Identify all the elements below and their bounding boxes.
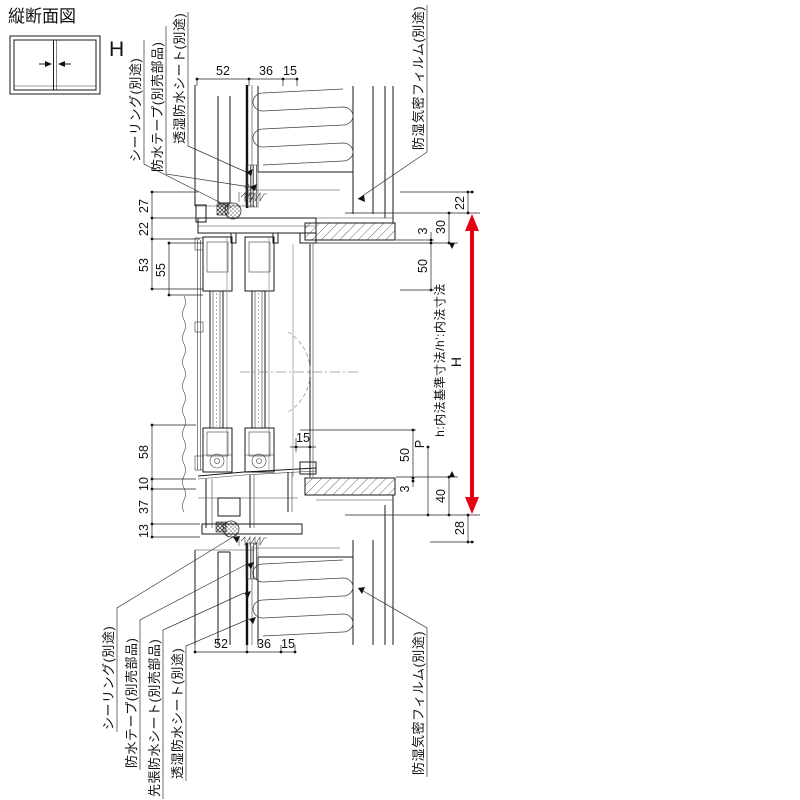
callout-breathable-sheet-top: 透湿防水シート(別途) bbox=[172, 13, 187, 144]
dim-right-3-top: 3 bbox=[416, 227, 430, 234]
wall-above bbox=[195, 85, 393, 223]
trim-board-top bbox=[305, 223, 395, 240]
dim-right-22: 22 bbox=[453, 196, 467, 210]
pre-applied-sheet-wavy bbox=[183, 296, 186, 512]
dim-left-13: 13 bbox=[137, 524, 151, 538]
sealant-bottom bbox=[223, 521, 239, 537]
height-label: H bbox=[448, 357, 464, 367]
interior-sash bbox=[245, 237, 274, 472]
callout-sealing-top: シーリング(別途) bbox=[128, 58, 143, 162]
callout-waterproof-tape-top: 防水テープ(別売部品) bbox=[150, 42, 165, 172]
sliding-window-icon bbox=[10, 36, 100, 94]
dim-bottom-36: 36 bbox=[257, 637, 271, 651]
waterproof-tape-bottom bbox=[246, 543, 258, 579]
callout-vapor-film-bottom: 防湿気密フィルム(別途) bbox=[411, 631, 426, 775]
dim-right-28: 28 bbox=[453, 521, 467, 535]
dim-top-36: 36 bbox=[259, 64, 273, 78]
height-note: h:内法基準寸法/h':内法寸法 bbox=[432, 283, 447, 437]
dims-top: 52 36 15 bbox=[196, 64, 299, 86]
callout-waterproof-tape-bottom: 防水テープ(別売部品) bbox=[124, 638, 139, 768]
sealant-top bbox=[225, 203, 241, 219]
header: 縦断面図 H bbox=[8, 7, 124, 94]
dim-right-P: P bbox=[413, 440, 427, 448]
trim-board-bottom bbox=[305, 478, 395, 495]
arrow-left-icon bbox=[58, 61, 65, 67]
dim-left-55: 55 bbox=[154, 263, 168, 277]
dim-left-27: 27 bbox=[137, 199, 151, 213]
insulation-batt-bottom bbox=[253, 560, 353, 636]
dims-bottom: 52 36 15 bbox=[194, 637, 297, 653]
dim-right-30: 30 bbox=[434, 220, 448, 234]
frame-sill bbox=[198, 462, 393, 537]
insulation-batt-top bbox=[253, 89, 353, 165]
vertical-section-drawing: 縦断面図 H bbox=[0, 0, 800, 800]
callout-pre-applied-sheet: 先張防水シート(別売部品) bbox=[147, 639, 162, 797]
dim-right-40: 40 bbox=[434, 489, 448, 503]
height-arrow-head-bottom bbox=[465, 497, 479, 514]
dim-left-10: 10 bbox=[137, 477, 151, 491]
exterior-sash bbox=[203, 237, 232, 472]
height-arrow-head-top bbox=[465, 214, 479, 231]
dims-right-upper: 22 30 3 50 bbox=[316, 191, 480, 292]
icon-height-label: H bbox=[109, 38, 124, 61]
dim-bottom-15: 15 bbox=[281, 637, 295, 651]
dim-top-52: 52 bbox=[216, 64, 230, 78]
interior-trim-boards bbox=[305, 223, 395, 495]
dim-right-50-top: 50 bbox=[416, 259, 430, 273]
dim-left-53: 53 bbox=[137, 258, 151, 272]
dim-right-3-bottom: 3 bbox=[398, 485, 412, 492]
dims-left-lower: 58 10 37 13 bbox=[137, 424, 200, 539]
dim-top-15: 15 bbox=[283, 64, 297, 78]
callouts: シーリング(別途) 防水テープ(別売部品) 透湿防水シート(別途) 防湿気密フィ… bbox=[101, 5, 427, 799]
wall-below bbox=[195, 495, 393, 645]
dim-left-22: 22 bbox=[137, 222, 151, 236]
dims-left-upper: 27 22 53 55 bbox=[137, 191, 203, 297]
dim-left-58: 58 bbox=[137, 445, 151, 459]
callout-vapor-film-top: 防湿気密フィルム(別途) bbox=[411, 6, 426, 150]
callout-sealing-bottom: シーリング(別途) bbox=[101, 626, 116, 730]
dim-right-50-bottom: 50 bbox=[398, 448, 412, 462]
callout-breathable-sheet-bottom: 透湿防水シート(別途) bbox=[170, 648, 185, 779]
dim-left-37: 37 bbox=[137, 500, 151, 514]
page-title: 縦断面図 bbox=[8, 7, 76, 26]
dim-mid-15: 15 bbox=[296, 431, 310, 445]
dim-bottom-52: 52 bbox=[214, 637, 228, 651]
arrow-right-icon bbox=[45, 61, 52, 67]
height-marker: H h:内法基準寸法/h':内法寸法 bbox=[432, 214, 479, 514]
